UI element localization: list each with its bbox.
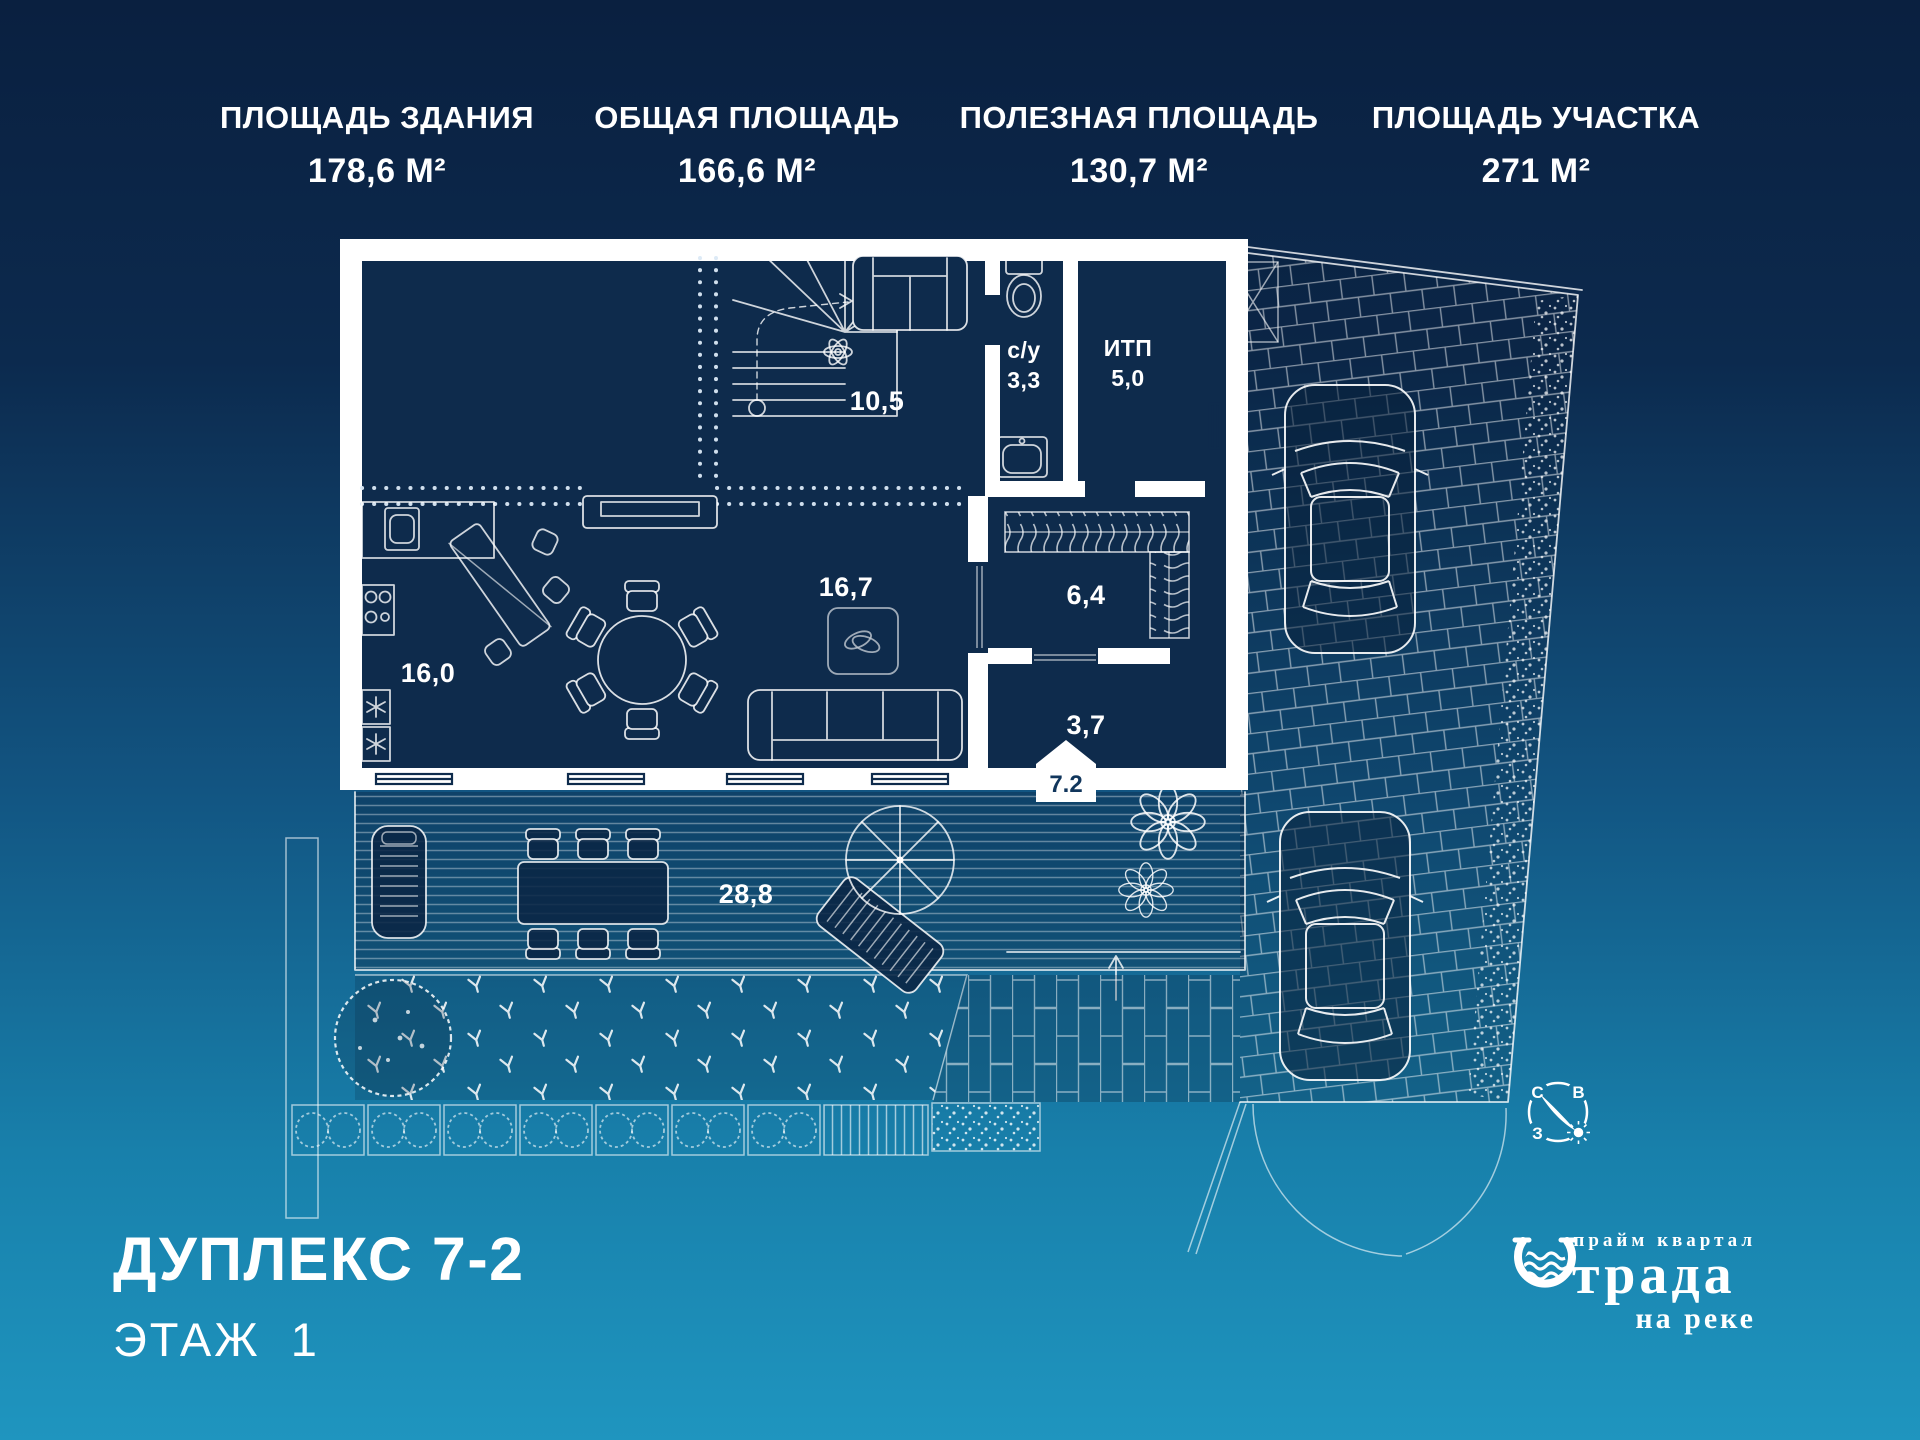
floor-label: ЭТАЖ 1 — [113, 1312, 525, 1367]
car-icon — [1267, 812, 1423, 1080]
gates — [1188, 1102, 1506, 1256]
brand-logo: прайм квартал трада на реке — [1515, 1230, 1756, 1335]
plan-title: ДУПЛЕКС 7-2 — [113, 1224, 525, 1294]
hedge-row — [292, 1103, 1040, 1155]
compass-east: В — [1572, 1083, 1584, 1102]
entrance-path — [933, 975, 1240, 1102]
logo-name: трада — [1572, 1244, 1736, 1306]
unit-badge-label: 7.2 — [1049, 771, 1082, 798]
room-label-living: 16,7 — [819, 572, 874, 602]
room-label-terrace: 28,8 — [719, 879, 774, 909]
room-label-hall: 10,5 — [850, 386, 905, 416]
room-label-kitchen: 16,0 — [401, 658, 456, 688]
room-label-hallway: 6,4 — [1066, 580, 1105, 610]
compass-rose: С В З — [1527, 1081, 1591, 1145]
room-label-bathroom: с/у — [1007, 337, 1040, 363]
room-label-entry: 3,7 — [1066, 710, 1105, 740]
compass-west: З — [1532, 1124, 1543, 1143]
tv-unit — [583, 496, 717, 528]
terrace-deck — [355, 792, 1245, 1000]
room-area-itp: 5,0 — [1111, 365, 1144, 391]
sofa-small — [853, 256, 967, 330]
logo-sub: на реке — [1635, 1302, 1756, 1335]
terrace-table — [518, 829, 668, 959]
page: ПЛОЩАДЬ ЗДАНИЯ 178,6 М² ОБЩАЯ ПЛОЩАДЬ 16… — [0, 0, 1920, 1440]
compass-north: С — [1531, 1083, 1543, 1102]
room-label-itp: ИТП — [1104, 335, 1153, 361]
room-area-bathroom: 3,3 — [1007, 367, 1040, 393]
car-icon — [1272, 385, 1428, 653]
tree-icon — [335, 980, 451, 1096]
horseshoe-icon — [1515, 1240, 1575, 1284]
sun-lounger — [372, 826, 426, 938]
plan-title-block: ДУПЛЕКС 7-2 ЭТАЖ 1 — [113, 1224, 525, 1367]
living-sofa — [748, 690, 962, 760]
sun-icon — [1567, 1121, 1590, 1144]
